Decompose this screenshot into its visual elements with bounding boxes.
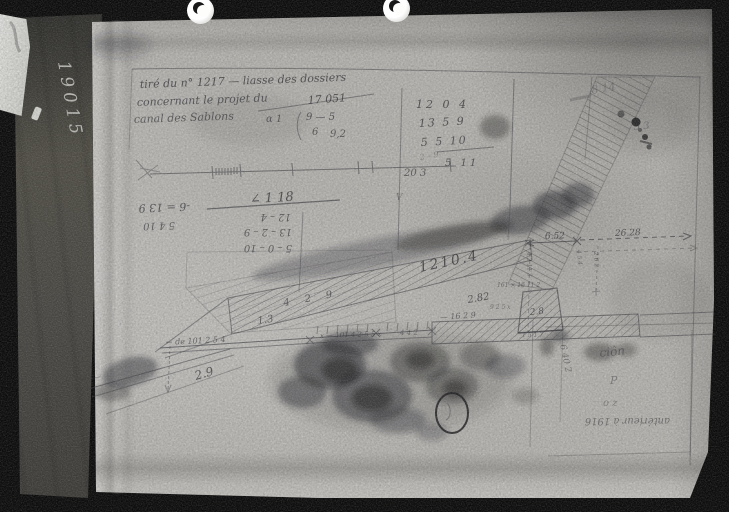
punch-hole-highlight: [197, 5, 209, 17]
archival-photograph: 19015 tiré du n° 1217 — liasse des dossi…: [0, 0, 729, 512]
punch-hole-highlight: [393, 3, 405, 15]
manuscript-paper: [0, 0, 729, 512]
